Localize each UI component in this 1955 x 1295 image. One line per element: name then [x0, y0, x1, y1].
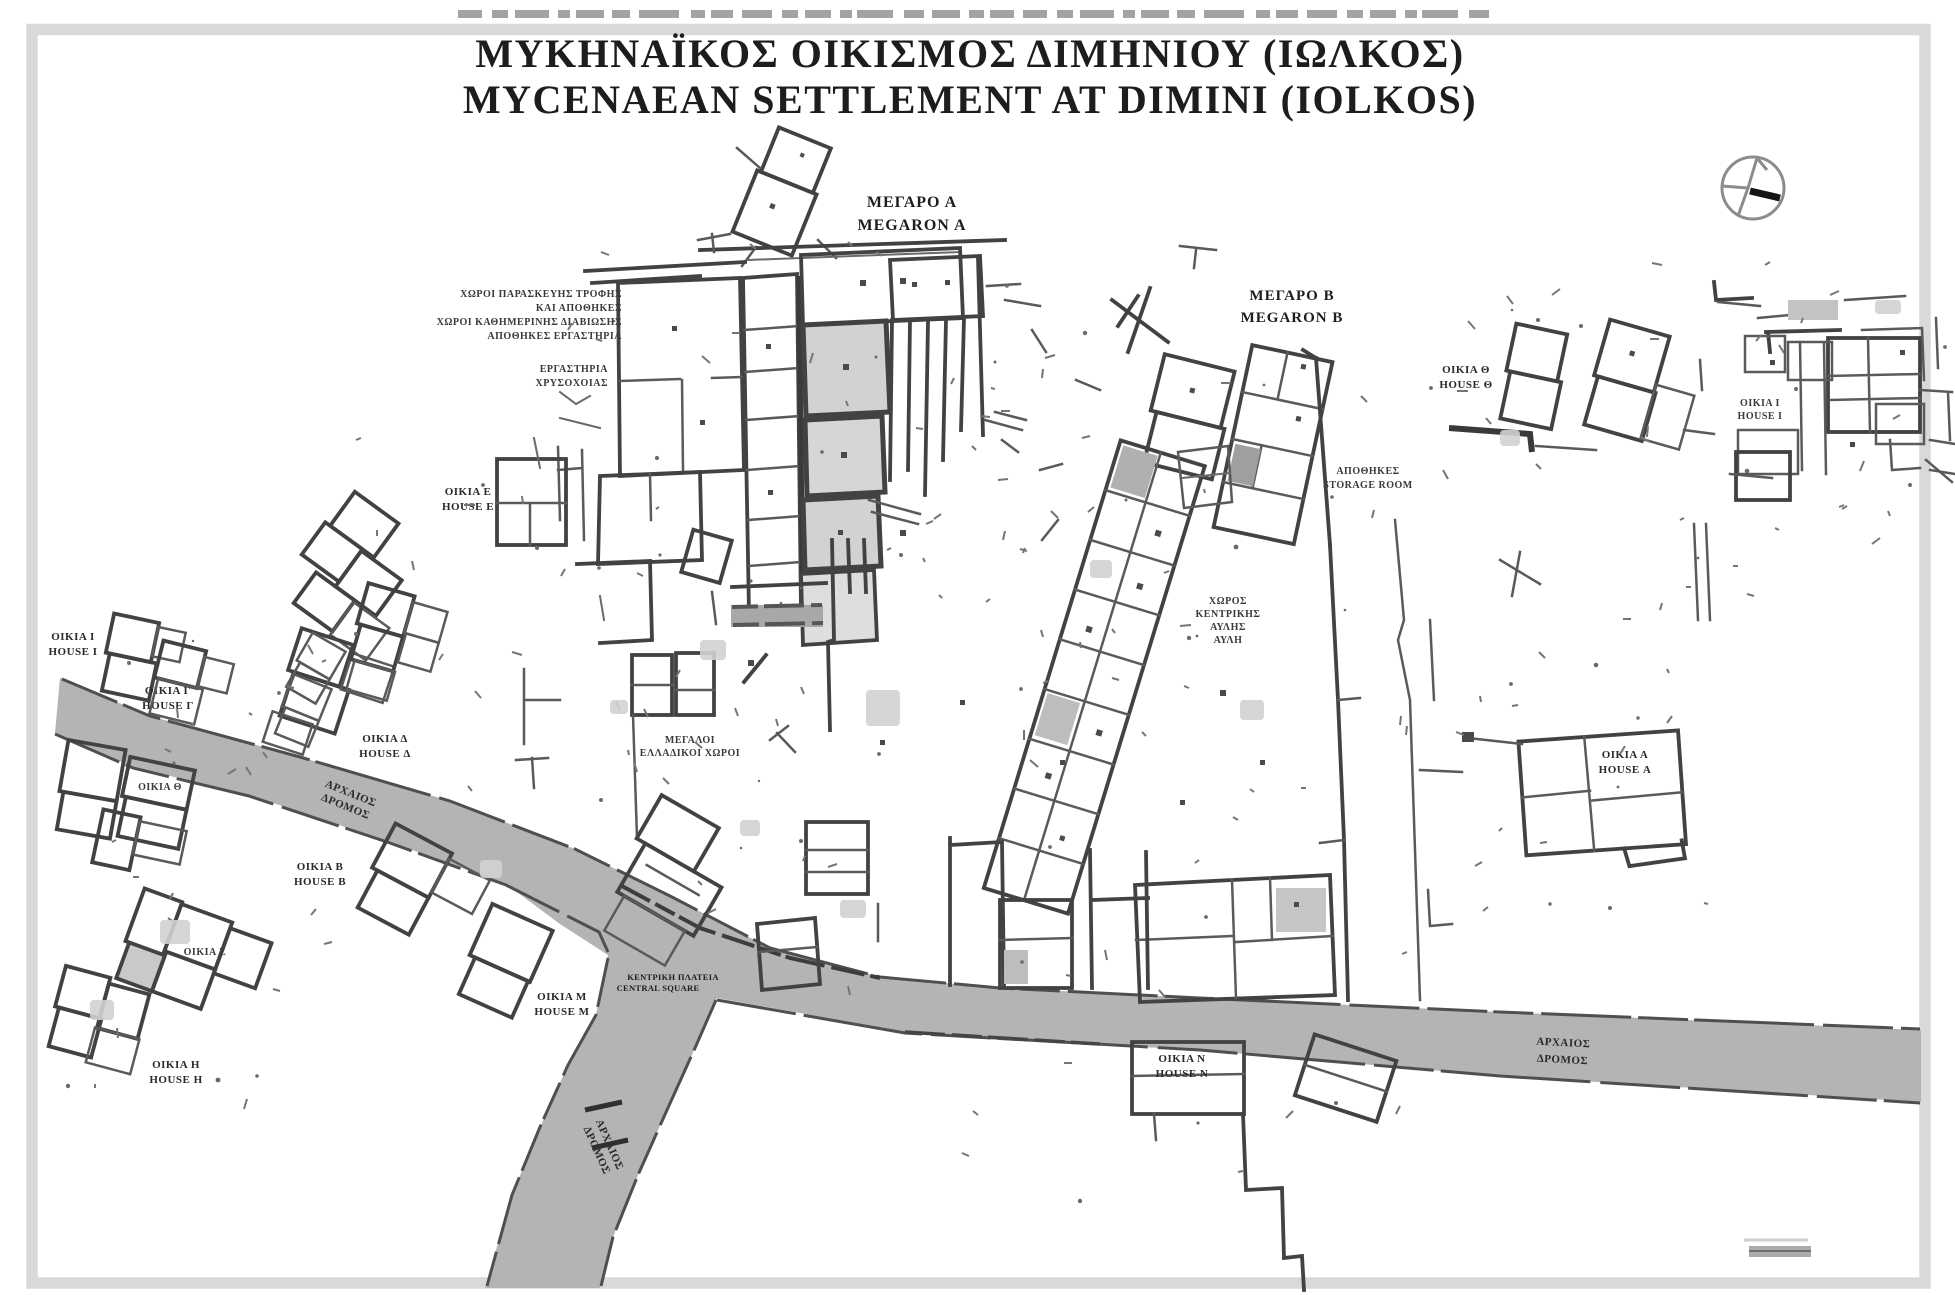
svg-text:ΧΩΡΟΙ ΚΑΘΗΜΕΡΙΝΗΣ ΔΙΑΒΙΩΣΗΣ: ΧΩΡΟΙ ΚΑΘΗΜΕΡΙΝΗΣ ΔΙΑΒΙΩΣΗΣ	[437, 317, 622, 328]
svg-text:CENTRAL SQUARE: CENTRAL SQUARE	[617, 983, 700, 993]
svg-text:HOUSE Μ: HOUSE Μ	[534, 1006, 589, 1018]
svg-text:ΕΛΛΑΔΙΚΟΙ ΧΩΡΟΙ: ΕΛΛΑΔΙΚΟΙ ΧΩΡΟΙ	[640, 748, 740, 759]
svg-text:ΑΥΛΗΣ: ΑΥΛΗΣ	[1210, 622, 1246, 633]
svg-text:ΟΙΚΙΑ Α: ΟΙΚΙΑ Α	[1602, 749, 1649, 761]
svg-text:HOUSE Ε: HOUSE Ε	[442, 501, 494, 513]
svg-text:ΧΡΥΣΟΧΟΙΑΣ: ΧΡΥΣΟΧΟΙΑΣ	[535, 378, 608, 389]
svg-text:HOUSE Δ: HOUSE Δ	[359, 748, 411, 760]
svg-text:ΟΙΚΙΑ Θ: ΟΙΚΙΑ Θ	[138, 782, 182, 793]
svg-text:ΚΕΝΤΡΙΚΗ ΠΛΑΤΕΙΑ: ΚΕΝΤΡΙΚΗ ΠΛΑΤΕΙΑ	[627, 972, 719, 982]
svg-text:ΜΕΓΑΡΟ Β: ΜΕΓΑΡΟ Β	[1249, 288, 1334, 304]
svg-text:ΑΥΛΗ: ΑΥΛΗ	[1214, 635, 1243, 646]
svg-text:HOUSE Α: HOUSE Α	[1599, 764, 1652, 776]
svg-text:ΜΕΓΑΛΟΙ: ΜΕΓΑΛΟΙ	[665, 735, 715, 746]
svg-text:ΜΥΚΗΝΑΪΚΟΣ ΟΙΚΙΣΜΟΣ ΔΙΜΗΝΙΟΥ (: ΜΥΚΗΝΑΪΚΟΣ ΟΙΚΙΣΜΟΣ ΔΙΜΗΝΙΟΥ (ΙΩΛΚΟΣ)	[475, 31, 1464, 76]
svg-text:MEGARON A: MEGARON A	[858, 217, 967, 234]
svg-text:MYCENAEAN SETTLEMENT AT DIMINI: MYCENAEAN SETTLEMENT AT DIMINI (IOLKOS)	[463, 77, 1477, 122]
svg-text:ΟΙΚΙΑ Β: ΟΙΚΙΑ Β	[297, 861, 344, 873]
svg-text:ΧΩΡΟΣ: ΧΩΡΟΣ	[1209, 596, 1247, 607]
svg-text:ΟΙΚΙΑ Η: ΟΙΚΙΑ Η	[152, 1059, 200, 1071]
svg-text:MEGARON B: MEGARON B	[1241, 310, 1344, 326]
svg-text:ΚΑΙ ΑΠΟΘΗΚΕΣ: ΚΑΙ ΑΠΟΘΗΚΕΣ	[536, 303, 622, 314]
svg-text:ΕΡΓΑΣΤΗΡΙΑ: ΕΡΓΑΣΤΗΡΙΑ	[540, 364, 609, 375]
svg-text:ΟΙΚΙΑ Θ: ΟΙΚΙΑ Θ	[1442, 364, 1490, 376]
svg-text:HOUSE Β: HOUSE Β	[294, 876, 346, 888]
svg-text:HOUSE Ι: HOUSE Ι	[48, 646, 97, 658]
svg-text:ΟΙΚΙΑ Μ: ΟΙΚΙΑ Μ	[537, 991, 587, 1003]
svg-text:HOUSE Η: HOUSE Η	[149, 1074, 202, 1086]
svg-text:ΜΕΓΑΡΟ Α: ΜΕΓΑΡΟ Α	[867, 194, 957, 211]
svg-text:HOUSE Ι: HOUSE Ι	[1738, 411, 1783, 422]
svg-text:ΑΠΟΘΗΚΕΣ: ΑΠΟΘΗΚΕΣ	[1336, 466, 1399, 477]
svg-text:ΟΙΚΙΑ Ε: ΟΙΚΙΑ Ε	[445, 486, 492, 498]
svg-text:ΟΙΚΙΑ Ι: ΟΙΚΙΑ Ι	[1740, 398, 1780, 409]
svg-text:ΟΙΚΙΑ Ι: ΟΙΚΙΑ Ι	[51, 631, 95, 643]
svg-text:ΟΙΚΙΑ Ν: ΟΙΚΙΑ Ν	[1158, 1053, 1205, 1065]
svg-text:HOUSE Θ: HOUSE Θ	[1439, 379, 1492, 391]
svg-text:ΟΙΚΙΑ Δ: ΟΙΚΙΑ Δ	[362, 733, 408, 745]
svg-text:STORAGE ROOM: STORAGE ROOM	[1323, 480, 1412, 491]
svg-text:ΟΙΚΙΑ Ζ: ΟΙΚΙΑ Ζ	[184, 947, 227, 958]
svg-text:ΧΩΡΟΙ ΠΑΡΑΣΚΕΥΗΣ ΤΡΟΦΗΣ: ΧΩΡΟΙ ΠΑΡΑΣΚΕΥΗΣ ΤΡΟΦΗΣ	[460, 289, 622, 300]
svg-text:HOUSE Ν: HOUSE Ν	[1156, 1068, 1209, 1080]
svg-text:ΚΕΝΤΡΙΚΗΣ: ΚΕΝΤΡΙΚΗΣ	[1196, 609, 1261, 620]
